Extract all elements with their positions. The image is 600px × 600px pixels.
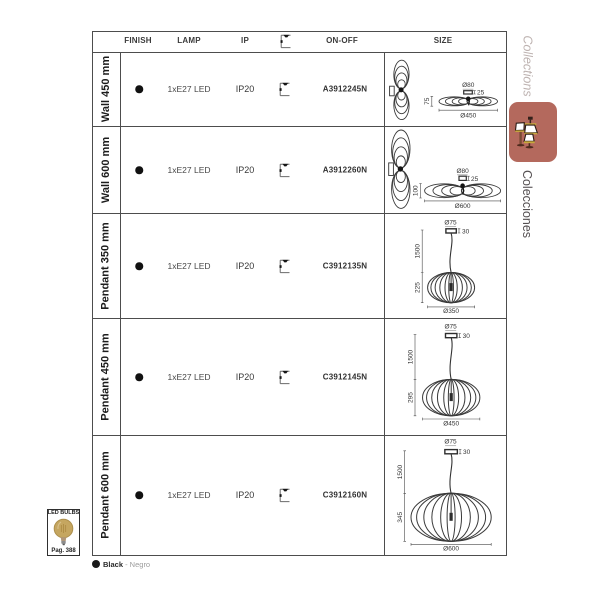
svg-text:30: 30 bbox=[463, 333, 471, 340]
svg-text:1500: 1500 bbox=[407, 349, 414, 364]
svg-text:345: 345 bbox=[397, 511, 404, 522]
svg-text:100: 100 bbox=[413, 185, 420, 196]
svg-text:1500: 1500 bbox=[415, 244, 422, 259]
svg-text:225: 225 bbox=[415, 282, 422, 293]
svg-text:Ø600: Ø600 bbox=[455, 203, 471, 210]
svg-text:30: 30 bbox=[462, 228, 470, 235]
svg-text:Ø600: Ø600 bbox=[443, 546, 459, 553]
svg-text:295: 295 bbox=[407, 392, 414, 403]
svg-text:Ø450: Ø450 bbox=[443, 420, 459, 427]
svg-text:30: 30 bbox=[463, 449, 471, 456]
svg-text:Ø75: Ø75 bbox=[444, 323, 457, 330]
svg-text:1500: 1500 bbox=[397, 464, 404, 479]
svg-text:25: 25 bbox=[471, 176, 479, 183]
svg-text:Ø75: Ø75 bbox=[444, 219, 457, 226]
svg-text:75: 75 bbox=[424, 97, 431, 105]
svg-text:Ø75: Ø75 bbox=[444, 439, 457, 446]
svg-text:Ø350: Ø350 bbox=[443, 308, 459, 315]
svg-text:Ø80: Ø80 bbox=[456, 168, 469, 175]
svg-text:Ø450: Ø450 bbox=[460, 113, 476, 120]
svg-text:25: 25 bbox=[477, 90, 485, 97]
svg-text:Ø80: Ø80 bbox=[462, 82, 475, 89]
